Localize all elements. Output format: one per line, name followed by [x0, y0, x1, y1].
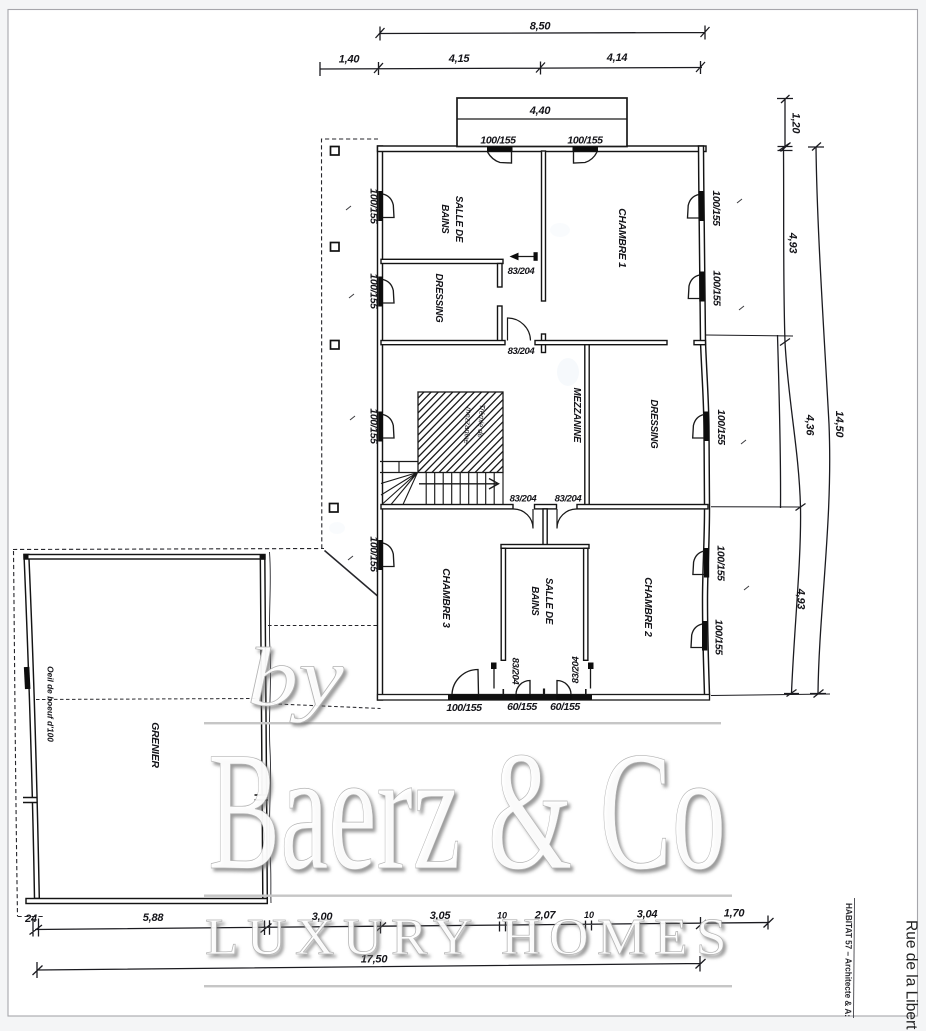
svg-text:SALLE DE: SALLE DE	[453, 196, 464, 243]
svg-text:100/155: 100/155	[368, 536, 380, 572]
svg-text:CHAMBRE 3: CHAMBRE 3	[440, 568, 451, 628]
svg-text:8,50: 8,50	[530, 21, 552, 33]
svg-text:100/155: 100/155	[715, 409, 727, 445]
svg-text:Rue de la Libert: Rue de la Libert	[903, 920, 920, 1030]
svg-text:HABITAT 57 – Architecte & A:: HABITAT 57 – Architecte & A:	[843, 903, 854, 1017]
svg-text:4,93: 4,93	[795, 588, 807, 610]
svg-text:83/204: 83/204	[571, 656, 582, 684]
svg-text:1,20: 1,20	[790, 113, 802, 135]
svg-text:GRENIER: GRENIER	[149, 722, 160, 768]
svg-text:100/155: 100/155	[713, 619, 725, 655]
svg-text:DRESSING: DRESSING	[433, 274, 444, 324]
svg-text:BAINS: BAINS	[529, 586, 540, 616]
svg-text:4,15: 4,15	[448, 53, 471, 65]
svg-text:Baerz & Co: Baerz & Co	[208, 717, 726, 905]
svg-text:100/155: 100/155	[711, 270, 723, 306]
svg-text:83/204: 83/204	[508, 266, 536, 277]
svg-text:100/155: 100/155	[567, 135, 603, 147]
svg-text:4,36: 4,36	[804, 414, 816, 437]
svg-text:DRESSING: DRESSING	[648, 400, 659, 450]
svg-text:4,93: 4,93	[787, 232, 799, 254]
svg-text:83/204: 83/204	[510, 658, 521, 686]
svg-text:100/155: 100/155	[710, 190, 722, 226]
svg-text:BAINS: BAINS	[439, 204, 450, 234]
svg-text:SALLE DE: SALLE DE	[543, 578, 554, 625]
svg-text:14,50: 14,50	[833, 411, 845, 439]
svg-text:LUXURY HOMES: LUXURY HOMES	[205, 909, 735, 966]
svg-text:83/204: 83/204	[555, 494, 583, 505]
svg-text:4,40: 4,40	[529, 105, 552, 117]
svg-text:24: 24	[24, 913, 37, 925]
svg-text:4,14: 4,14	[606, 52, 628, 64]
svg-text:100/155: 100/155	[368, 408, 380, 444]
svg-text:60/155: 60/155	[507, 701, 537, 713]
svg-text:1,40: 1,40	[339, 54, 361, 66]
svg-text:5,88: 5,88	[143, 912, 165, 924]
svg-text:CHAMBRE 2: CHAMBRE 2	[642, 577, 653, 637]
svg-text:CHAMBRE 1: CHAMBRE 1	[616, 208, 627, 268]
svg-text:60/155: 60/155	[550, 701, 580, 713]
svg-text:100/155: 100/155	[446, 702, 482, 714]
svg-text:Oeil de boeuf d'100: Oeil de boeuf d'100	[46, 666, 56, 742]
svg-text:by: by	[247, 631, 345, 724]
svg-text:100/155: 100/155	[715, 545, 727, 581]
svg-text:83/204: 83/204	[510, 494, 538, 505]
svg-text:83/204: 83/204	[508, 346, 536, 357]
svg-text:MEZZANINE: MEZZANINE	[571, 388, 582, 443]
svg-text:100/155: 100/155	[480, 135, 516, 147]
svg-text:100/155: 100/155	[368, 188, 380, 224]
svg-text:100/155: 100/155	[368, 273, 380, 309]
